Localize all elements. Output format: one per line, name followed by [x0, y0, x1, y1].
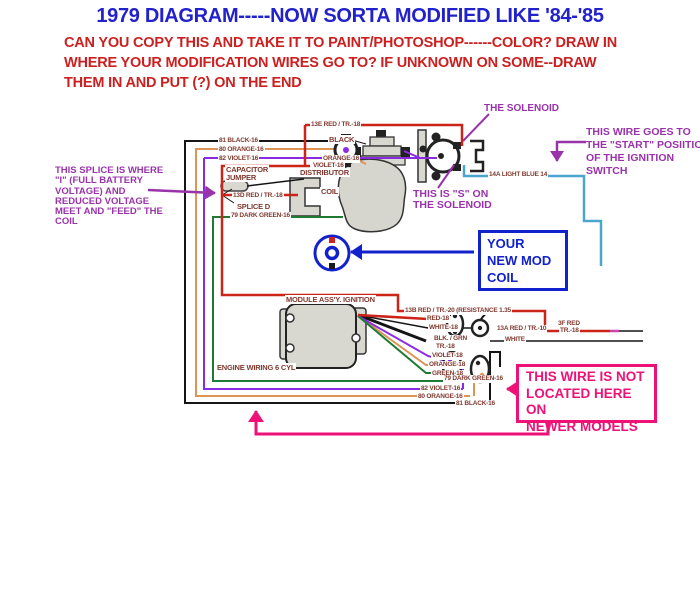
- wire-label-red-18: RED-18: [426, 315, 450, 323]
- mod-coil-symbol: [315, 236, 349, 270]
- wire-label-14a-light-blue: 14A LIGHT BLUE 14: [488, 171, 548, 179]
- wiring-diagram-page: 1979 DIAGRAM-----NOW SORTA MODIFIED LIKE…: [0, 0, 700, 590]
- wire-label-79-green-bottom: 79 DARK GREEN-16: [443, 375, 504, 383]
- wire-label-orange-18: ORANGE-18: [428, 361, 466, 369]
- wire-label-blk-grn-2: TR.-18: [435, 343, 456, 351]
- annotation-line: THIS WIRE GOES TO: [586, 126, 700, 139]
- annotation-line: THE SOLENOID: [413, 200, 492, 211]
- wire-label-white: WHITE: [504, 336, 526, 344]
- start-wire-arrow: [557, 142, 586, 161]
- wire-label-82-violet-top: 82 VIOLET-16: [218, 155, 259, 163]
- wire-label-3f-red-2: TR.-18: [559, 327, 580, 335]
- splice-d-label: SPLICE D: [236, 202, 271, 211]
- callout-line: NEWER MODELS: [526, 419, 654, 436]
- wire-label-violet-18: VIOLET-18: [431, 352, 464, 360]
- wire-label-blk-grn-1: BLK. / GRN: [433, 335, 468, 343]
- wire-label-82-violet-bottom: 82 VIOLET-16: [420, 385, 461, 393]
- wire-label-13e-red: 13E RED / TR.-18: [310, 121, 361, 129]
- engine-wiring-label: ENGINE WIRING 6 CYL: [216, 363, 296, 372]
- distributor-label: DISTRIBUTOR: [299, 168, 350, 177]
- wire-label-81-black-top: 81 BLACK-16: [218, 137, 259, 145]
- mod-coil-callout-box: YOUR NEW MOD COIL: [478, 230, 568, 291]
- connector-2: [472, 320, 488, 336]
- annotation-start-wire: THIS WIRE GOES TO THE "START" POSIITION …: [586, 126, 700, 178]
- not-located-callout-box: THIS WIRE IS NOT LOCATED HERE ON NEWER M…: [516, 364, 657, 423]
- callout-line: THIS WIRE IS NOT: [526, 369, 654, 386]
- jumper-label: JUMPER: [225, 173, 257, 182]
- callout-line: LOCATED HERE ON: [526, 386, 654, 419]
- coil-shape: [290, 178, 320, 216]
- annotation-splice-note: THIS SPLICE IS WHERE "I" (FULL BATTERY V…: [55, 166, 163, 228]
- wire-label-13d-red: 13D RED / TR.-18: [232, 192, 284, 200]
- black-label: BLACK: [328, 135, 355, 144]
- annotation-s-terminal: THIS IS "S" ON THE SOLENOID: [413, 189, 492, 211]
- annotation-line: OF THE IGNITION: [586, 152, 700, 165]
- ignition-module-shape: [280, 304, 366, 368]
- wire-label-white-18: WHITE-18: [428, 324, 459, 332]
- annotation-line: COIL: [55, 217, 163, 227]
- coil-label: COIL: [320, 187, 339, 196]
- wire-label-79-green-top: 79 DARK GREEN-16: [230, 212, 291, 220]
- capacitor-shape: [221, 181, 248, 191]
- annotation-line: SWITCH: [586, 165, 700, 178]
- module-label: MODULE ASS'Y. IGNITION: [285, 295, 376, 304]
- wire-label-80-orange-top: 80 ORANGE-16: [218, 146, 265, 154]
- annotation-line: THE "START" POSIITION: [586, 139, 700, 152]
- callout-line: COIL: [487, 269, 565, 286]
- solenoid-bracket: [470, 141, 483, 171]
- wire-label-13a-red: 13A RED / TR.-10: [496, 325, 547, 333]
- wire-label-13b-red: 13B RED / TR.-20 (RESISTANCE 1.35: [404, 307, 512, 315]
- solenoid-pointer-line: [463, 114, 489, 141]
- not-located-bottom-arrow: [256, 411, 548, 434]
- solenoid-shape: [418, 130, 483, 182]
- callout-line: NEW MOD: [487, 252, 565, 269]
- wire-label-81-black-bottom: 81 BLACK-16: [455, 400, 496, 408]
- callout-line: YOUR: [487, 235, 565, 252]
- annotation-the-solenoid: THE SOLENOID: [484, 103, 559, 114]
